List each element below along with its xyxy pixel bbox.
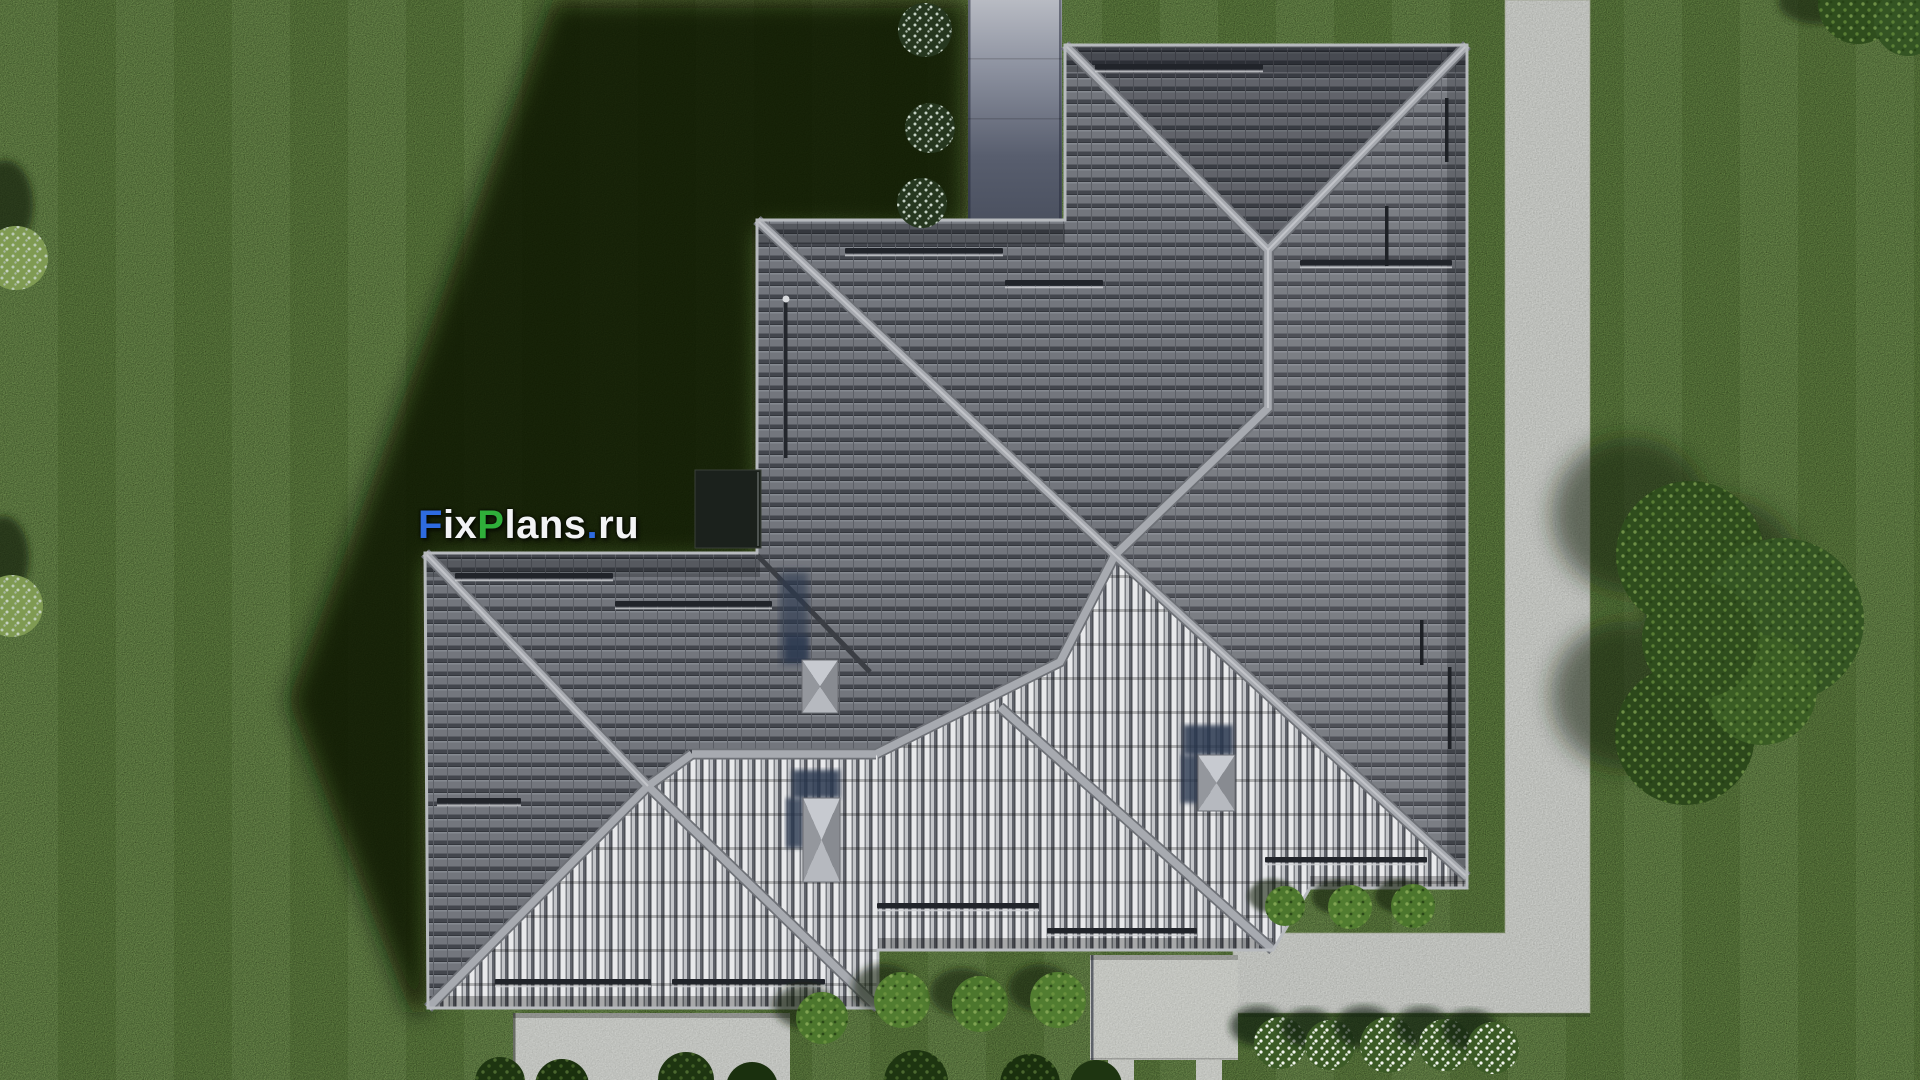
- watermark-seg-2: ix: [443, 503, 477, 547]
- chimney-a: [803, 798, 840, 882]
- watermark-seg-4: lans: [504, 503, 586, 547]
- watermark-seg-5: .: [587, 503, 599, 547]
- watermark-seg-6: ru: [598, 503, 639, 547]
- chimney-shadow-c: [780, 572, 808, 664]
- watermark-seg-1: F: [418, 503, 443, 547]
- skylight: [695, 470, 761, 548]
- watermark-seg-3: P: [477, 503, 504, 547]
- chimney-b: [1198, 755, 1235, 811]
- flower-bushes-bottom: [1230, 1006, 1519, 1074]
- chimney-c: [802, 660, 838, 713]
- entry-walkway: [968, 0, 1062, 224]
- hedge-bushes-side: [1248, 879, 1435, 929]
- aerial-site-render: FixPlans.ru: [0, 0, 1920, 1080]
- scene-svg: [0, 0, 1920, 1080]
- watermark-logo: FixPlans.ru: [418, 503, 639, 548]
